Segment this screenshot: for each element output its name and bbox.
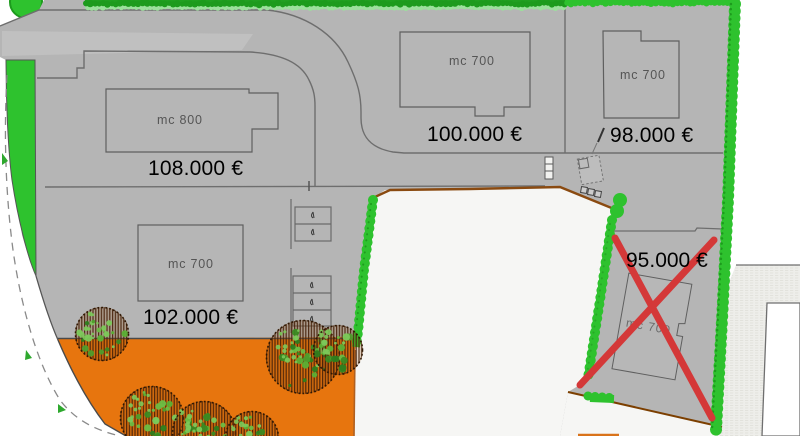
svg-text:mc 700: mc 700 bbox=[168, 257, 214, 271]
svg-text:mc 700: mc 700 bbox=[449, 54, 495, 68]
svg-text:108.000 €: 108.000 € bbox=[148, 157, 243, 180]
svg-text:mc 700: mc 700 bbox=[620, 68, 666, 82]
svg-text:98.000 €: 98.000 € bbox=[610, 124, 693, 147]
svg-text:100.000 €: 100.000 € bbox=[427, 123, 522, 146]
svg-text:95.000 €: 95.000 € bbox=[626, 249, 708, 272]
svg-text:mc 800: mc 800 bbox=[157, 113, 203, 127]
svg-text:102.000 €: 102.000 € bbox=[143, 306, 238, 329]
